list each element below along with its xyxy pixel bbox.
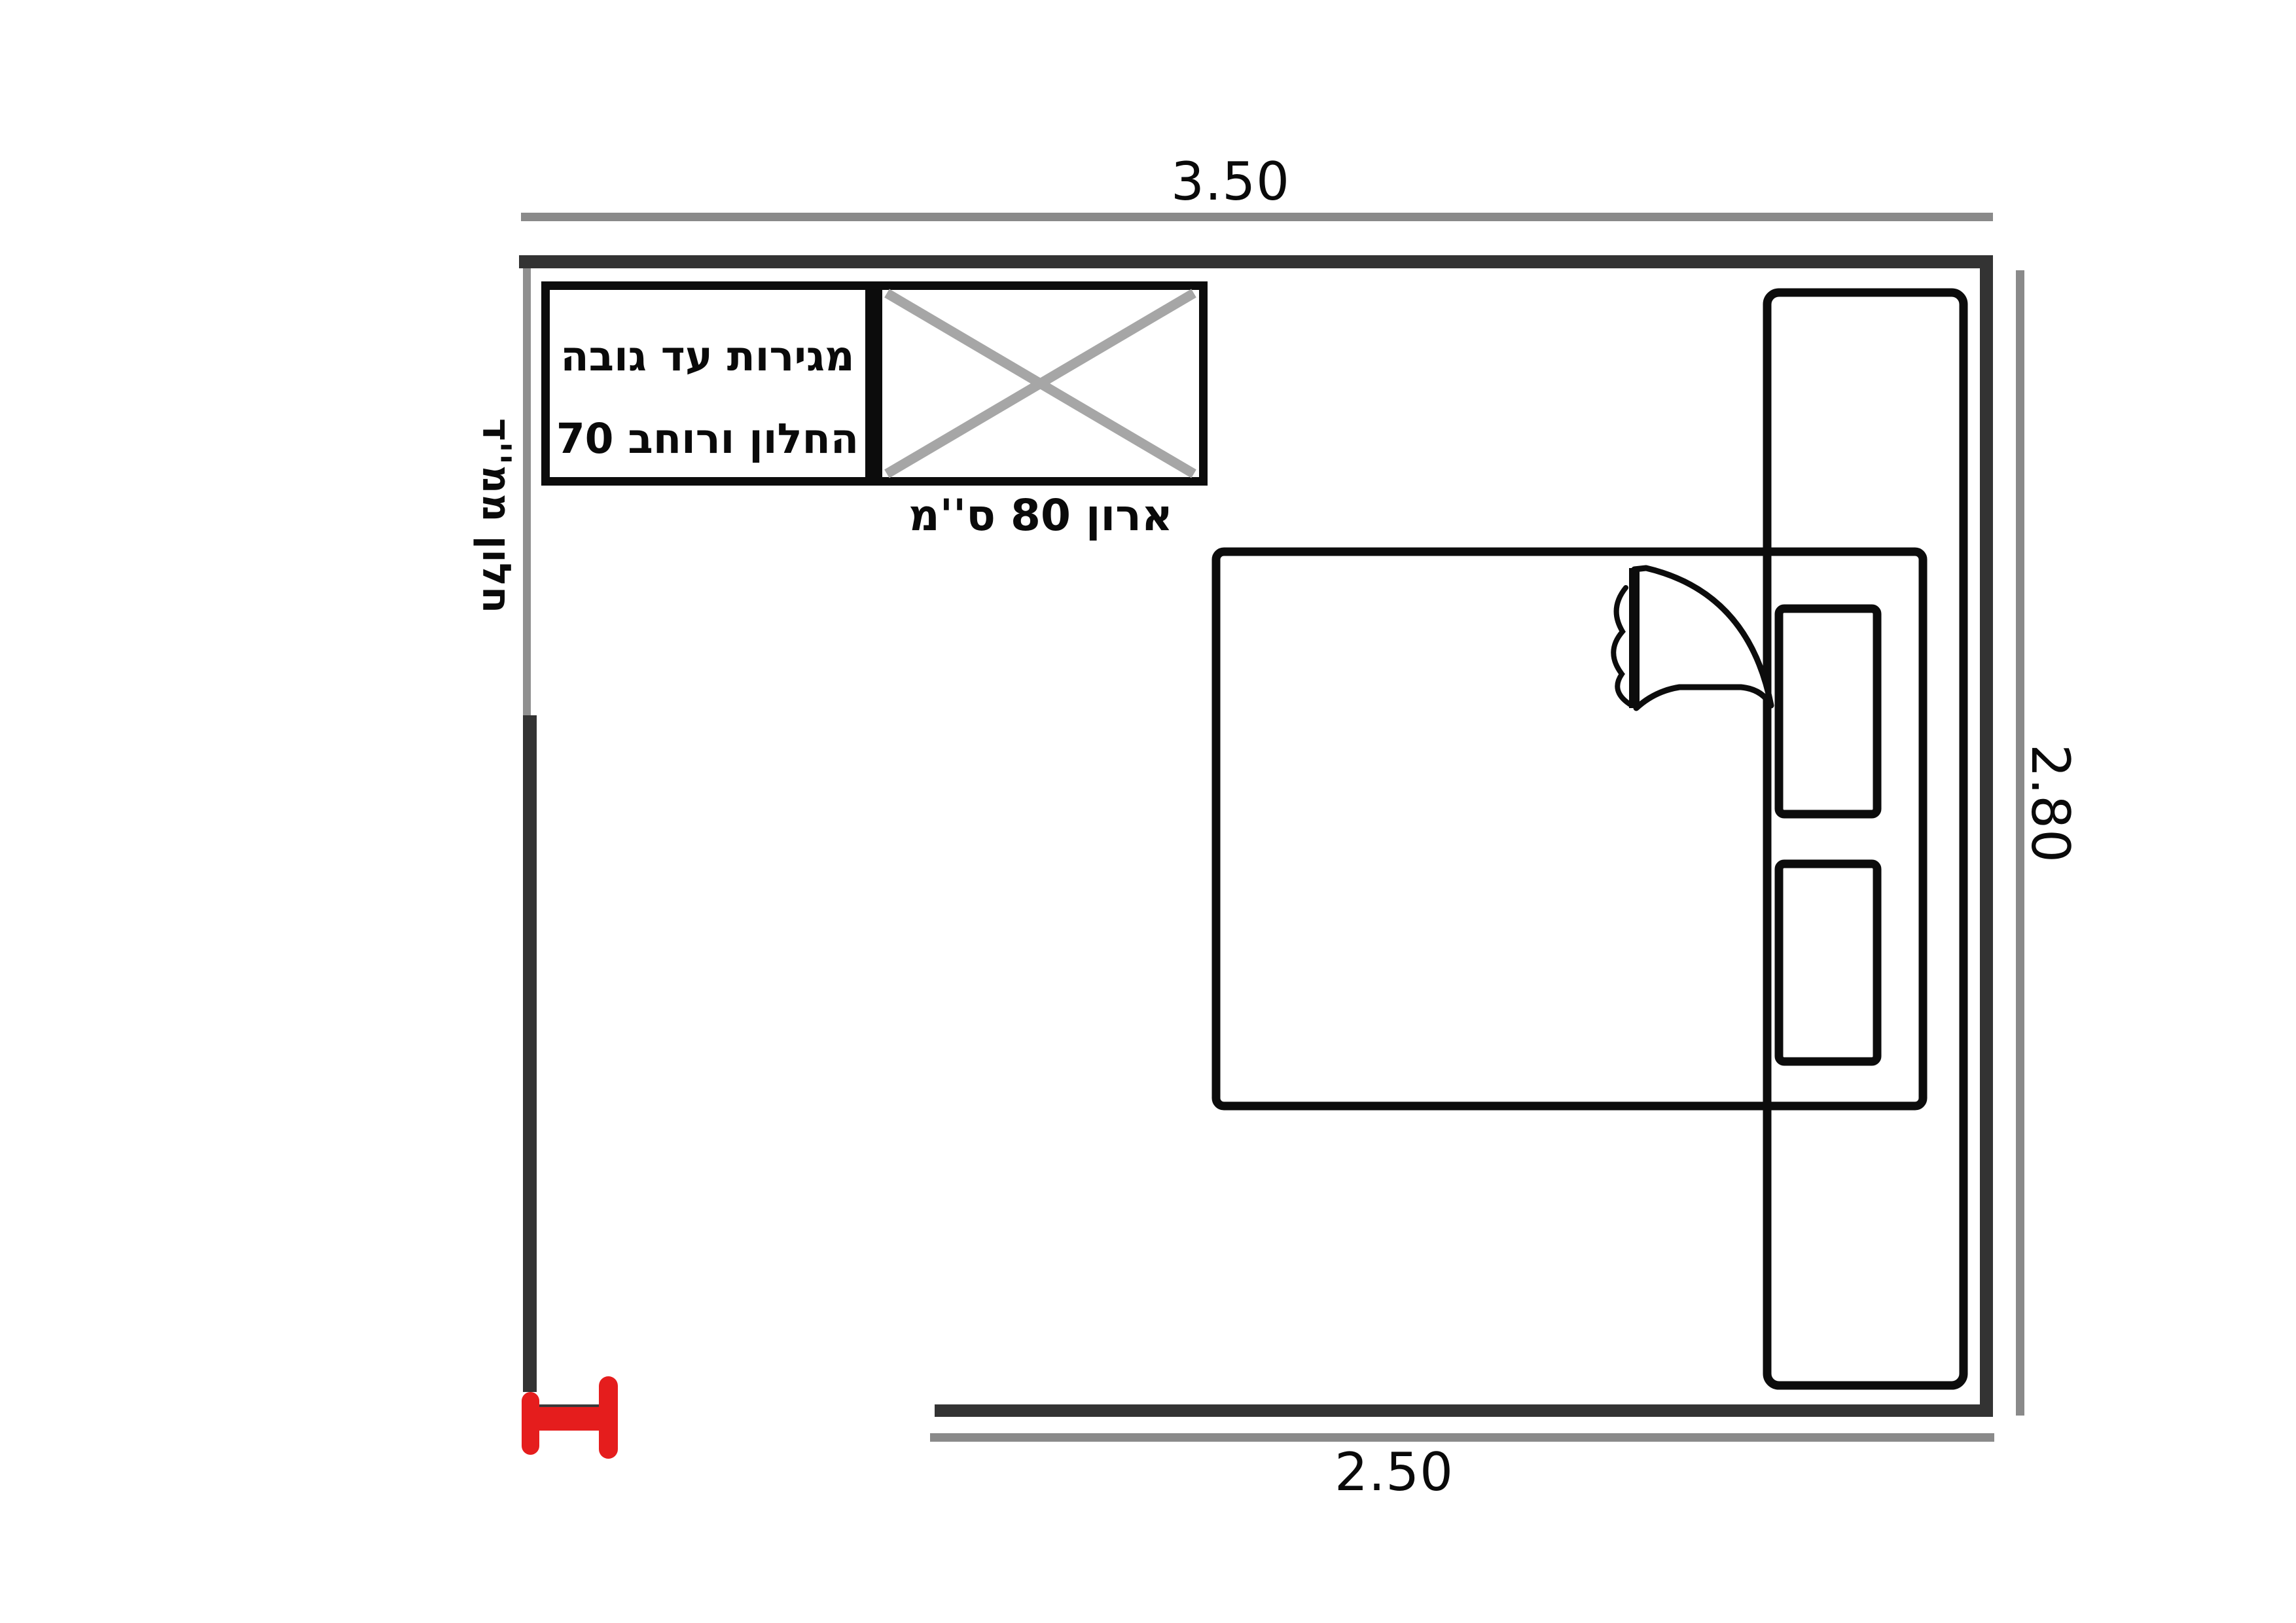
furniture-layer — [0, 0, 2296, 1623]
floor-plan-canvas: 3.50 2.80 2.50 חלון ממ''ד מגירות עד גובה… — [0, 0, 2296, 1623]
pillow-top — [1779, 609, 1877, 814]
pillow-bottom — [1779, 864, 1877, 1061]
bed-headboard — [1767, 293, 1964, 1385]
blanket-fold-scallop — [1613, 588, 1630, 704]
bed-outline — [1216, 552, 1923, 1106]
blanket-fold-outline — [1634, 568, 1771, 708]
door-marker-crossbar — [530, 1407, 603, 1431]
